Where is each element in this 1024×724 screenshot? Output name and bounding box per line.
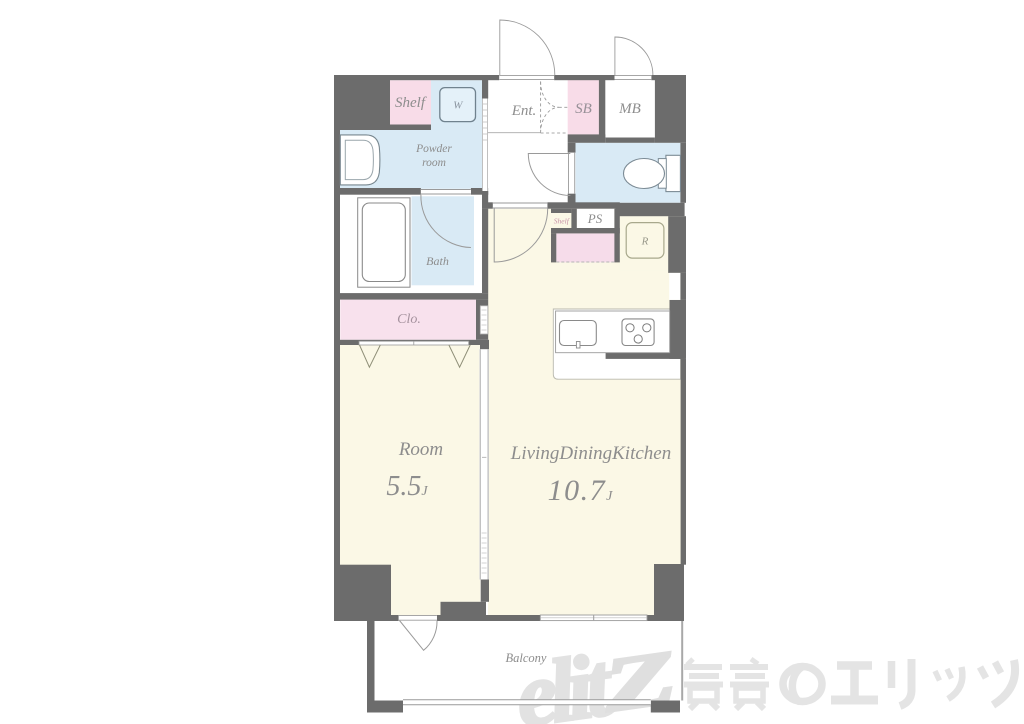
svg-text:Shelf: Shelf (395, 95, 427, 111)
svg-text:PS: PS (587, 211, 603, 226)
svg-text:SB: SB (575, 101, 592, 117)
svg-text:Room: Room (398, 439, 443, 460)
svg-text:R: R (641, 236, 649, 248)
svg-text:LivingDiningKitchen: LivingDiningKitchen (510, 443, 671, 464)
svg-text:Shelf: Shelf (554, 217, 570, 226)
svg-text:Clo.: Clo. (397, 312, 421, 327)
svg-text:Ent.: Ent. (511, 103, 537, 119)
svg-text:10.7J: 10.7J (548, 474, 614, 507)
svg-text:Bath: Bath (426, 254, 449, 268)
svg-text:W: W (453, 100, 463, 112)
svg-text:Powder: Powder (415, 143, 452, 155)
svg-text:room: room (422, 157, 446, 169)
svg-text:Balcony: Balcony (506, 651, 547, 665)
svg-text:MB: MB (618, 101, 641, 117)
